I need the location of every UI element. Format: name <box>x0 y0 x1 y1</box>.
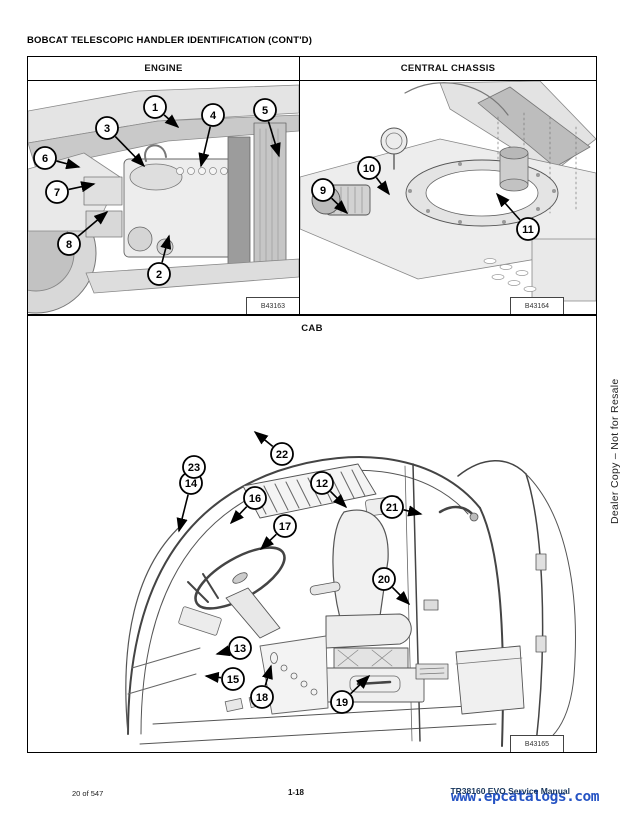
callout-arrow-16 <box>231 507 247 523</box>
callout-label-8: 8 <box>66 239 72 251</box>
manual-page: BOBCAT TELESCOPIC HANDLER IDENTIFICATION… <box>0 0 627 816</box>
figure-number: B43163 <box>246 297 299 314</box>
panel-chassis-title: CENTRAL CHASSIS <box>300 57 596 81</box>
panel-cab: CAB <box>27 315 597 753</box>
callout-label-12: 12 <box>316 478 328 490</box>
dealer-copy-watermark: Dealer Copy – Not for Resale <box>609 324 621 524</box>
callout-label-9: 9 <box>320 185 326 197</box>
callout-label-20: 20 <box>378 574 390 586</box>
figure-number: B43164 <box>510 297 564 314</box>
panel-engine-body: 12345678 <box>28 81 299 314</box>
callout-label-1: 1 <box>152 102 158 114</box>
callout-label-5: 5 <box>262 105 268 117</box>
callout-label-2: 2 <box>156 269 162 281</box>
callout-label-16: 16 <box>249 493 261 505</box>
panel-chassis: CENTRAL CHASSIS <box>300 57 596 314</box>
callout-label-23: 23 <box>188 462 200 474</box>
callout-label-10: 10 <box>363 163 375 175</box>
callout-label-15: 15 <box>227 674 239 686</box>
callout-label-19: 19 <box>336 697 348 709</box>
panel-cab-body: 121314151617181920212223 <box>28 316 596 752</box>
callout-label-4: 4 <box>210 110 217 122</box>
callout-arrow-15 <box>206 676 221 678</box>
engine-illustration: 12345678 <box>28 81 299 314</box>
callout-label-6: 6 <box>42 153 48 165</box>
callout-arrow-20 <box>392 587 409 604</box>
callout-label-21: 21 <box>386 502 398 514</box>
callout-label-11: 11 <box>522 224 534 236</box>
callout-label-17: 17 <box>279 521 291 533</box>
callout-label-3: 3 <box>104 123 110 135</box>
callout-arrow-22 <box>255 432 273 446</box>
panel-engine-title: ENGINE <box>28 57 299 81</box>
footer-manual-title: TR38160 EVO Service Manual <box>450 786 570 796</box>
panel-chassis-body: 91011 <box>300 81 596 314</box>
chassis-illustration: 91011 <box>300 81 596 314</box>
chassis-line-art <box>300 81 596 301</box>
cab-illustration: 121314151617181920212223 <box>28 316 596 752</box>
page-title: BOBCAT TELESCOPIC HANDLER IDENTIFICATION… <box>27 35 312 46</box>
callout-arrow-13 <box>217 651 228 654</box>
panel-engine: ENGINE <box>28 57 300 314</box>
callout-arrow-14 <box>179 495 188 531</box>
callout-label-13: 13 <box>234 643 246 655</box>
top-panels: ENGINE <box>27 56 597 315</box>
figure-number: B43165 <box>510 735 564 752</box>
callout-label-18: 18 <box>256 692 268 704</box>
callout-label-7: 7 <box>54 187 60 199</box>
callout-label-22: 22 <box>276 449 288 461</box>
callout-label-14: 14 <box>185 478 198 490</box>
